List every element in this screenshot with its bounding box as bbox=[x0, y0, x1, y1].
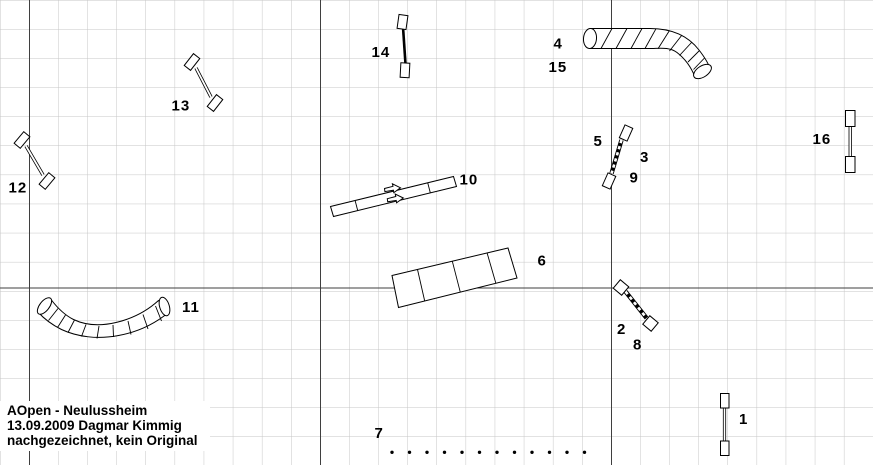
weave-pole bbox=[425, 451, 428, 454]
jump-wing bbox=[721, 394, 730, 409]
obstacle-label-15: 15 bbox=[549, 59, 568, 76]
jump-wing bbox=[721, 441, 730, 456]
obstacle-label-7: 7 bbox=[375, 425, 384, 442]
obstacle-label-16: 16 bbox=[813, 131, 832, 148]
weave-pole bbox=[565, 451, 568, 454]
weave-pole bbox=[495, 451, 498, 454]
obstacle-label-14: 14 bbox=[372, 44, 391, 61]
grid bbox=[0, 0, 873, 465]
course-info: AOpen - Neulussheim 13.09.2009 Dagmar Ki… bbox=[0, 401, 210, 451]
obstacle-label-11: 11 bbox=[182, 299, 200, 316]
weave-pole bbox=[548, 451, 551, 454]
course-note: nachgezeichnet, kein Original bbox=[7, 433, 198, 448]
weave-pole bbox=[530, 451, 533, 454]
weave-pole bbox=[408, 451, 411, 454]
weave-pole bbox=[478, 451, 481, 454]
weave-pole bbox=[460, 451, 463, 454]
course-plan-canvas: 1 2 8 5 3 9 4 15 6 7 10 11 12 13 14 16 bbox=[0, 0, 873, 465]
course-date-author: 13.09.2009 Dagmar Kimmig bbox=[7, 418, 198, 433]
obstacle-label-9: 9 bbox=[630, 170, 639, 187]
jump-wing bbox=[846, 111, 856, 127]
obstacle-label-3: 3 bbox=[640, 149, 649, 166]
weave-pole bbox=[583, 451, 586, 454]
obstacle-label-6: 6 bbox=[538, 253, 547, 270]
obstacle-label-12: 12 bbox=[9, 180, 28, 197]
jump-wing bbox=[846, 157, 856, 173]
obstacle-label-13: 13 bbox=[172, 98, 191, 115]
obstacle-label-8: 8 bbox=[633, 337, 642, 354]
obstacle-label-1: 1 bbox=[739, 411, 748, 428]
obstacle-label-10: 10 bbox=[460, 172, 479, 189]
jump-wing bbox=[400, 63, 410, 78]
obstacle-label-2: 2 bbox=[617, 321, 626, 338]
jump-wing bbox=[397, 14, 408, 29]
weave-pole bbox=[513, 451, 516, 454]
course-title: AOpen - Neulussheim bbox=[7, 403, 198, 418]
weave-pole bbox=[390, 451, 393, 454]
obstacle-label-5: 5 bbox=[594, 133, 603, 150]
weave-pole bbox=[443, 451, 446, 454]
obstacle-label-4: 4 bbox=[554, 36, 563, 53]
